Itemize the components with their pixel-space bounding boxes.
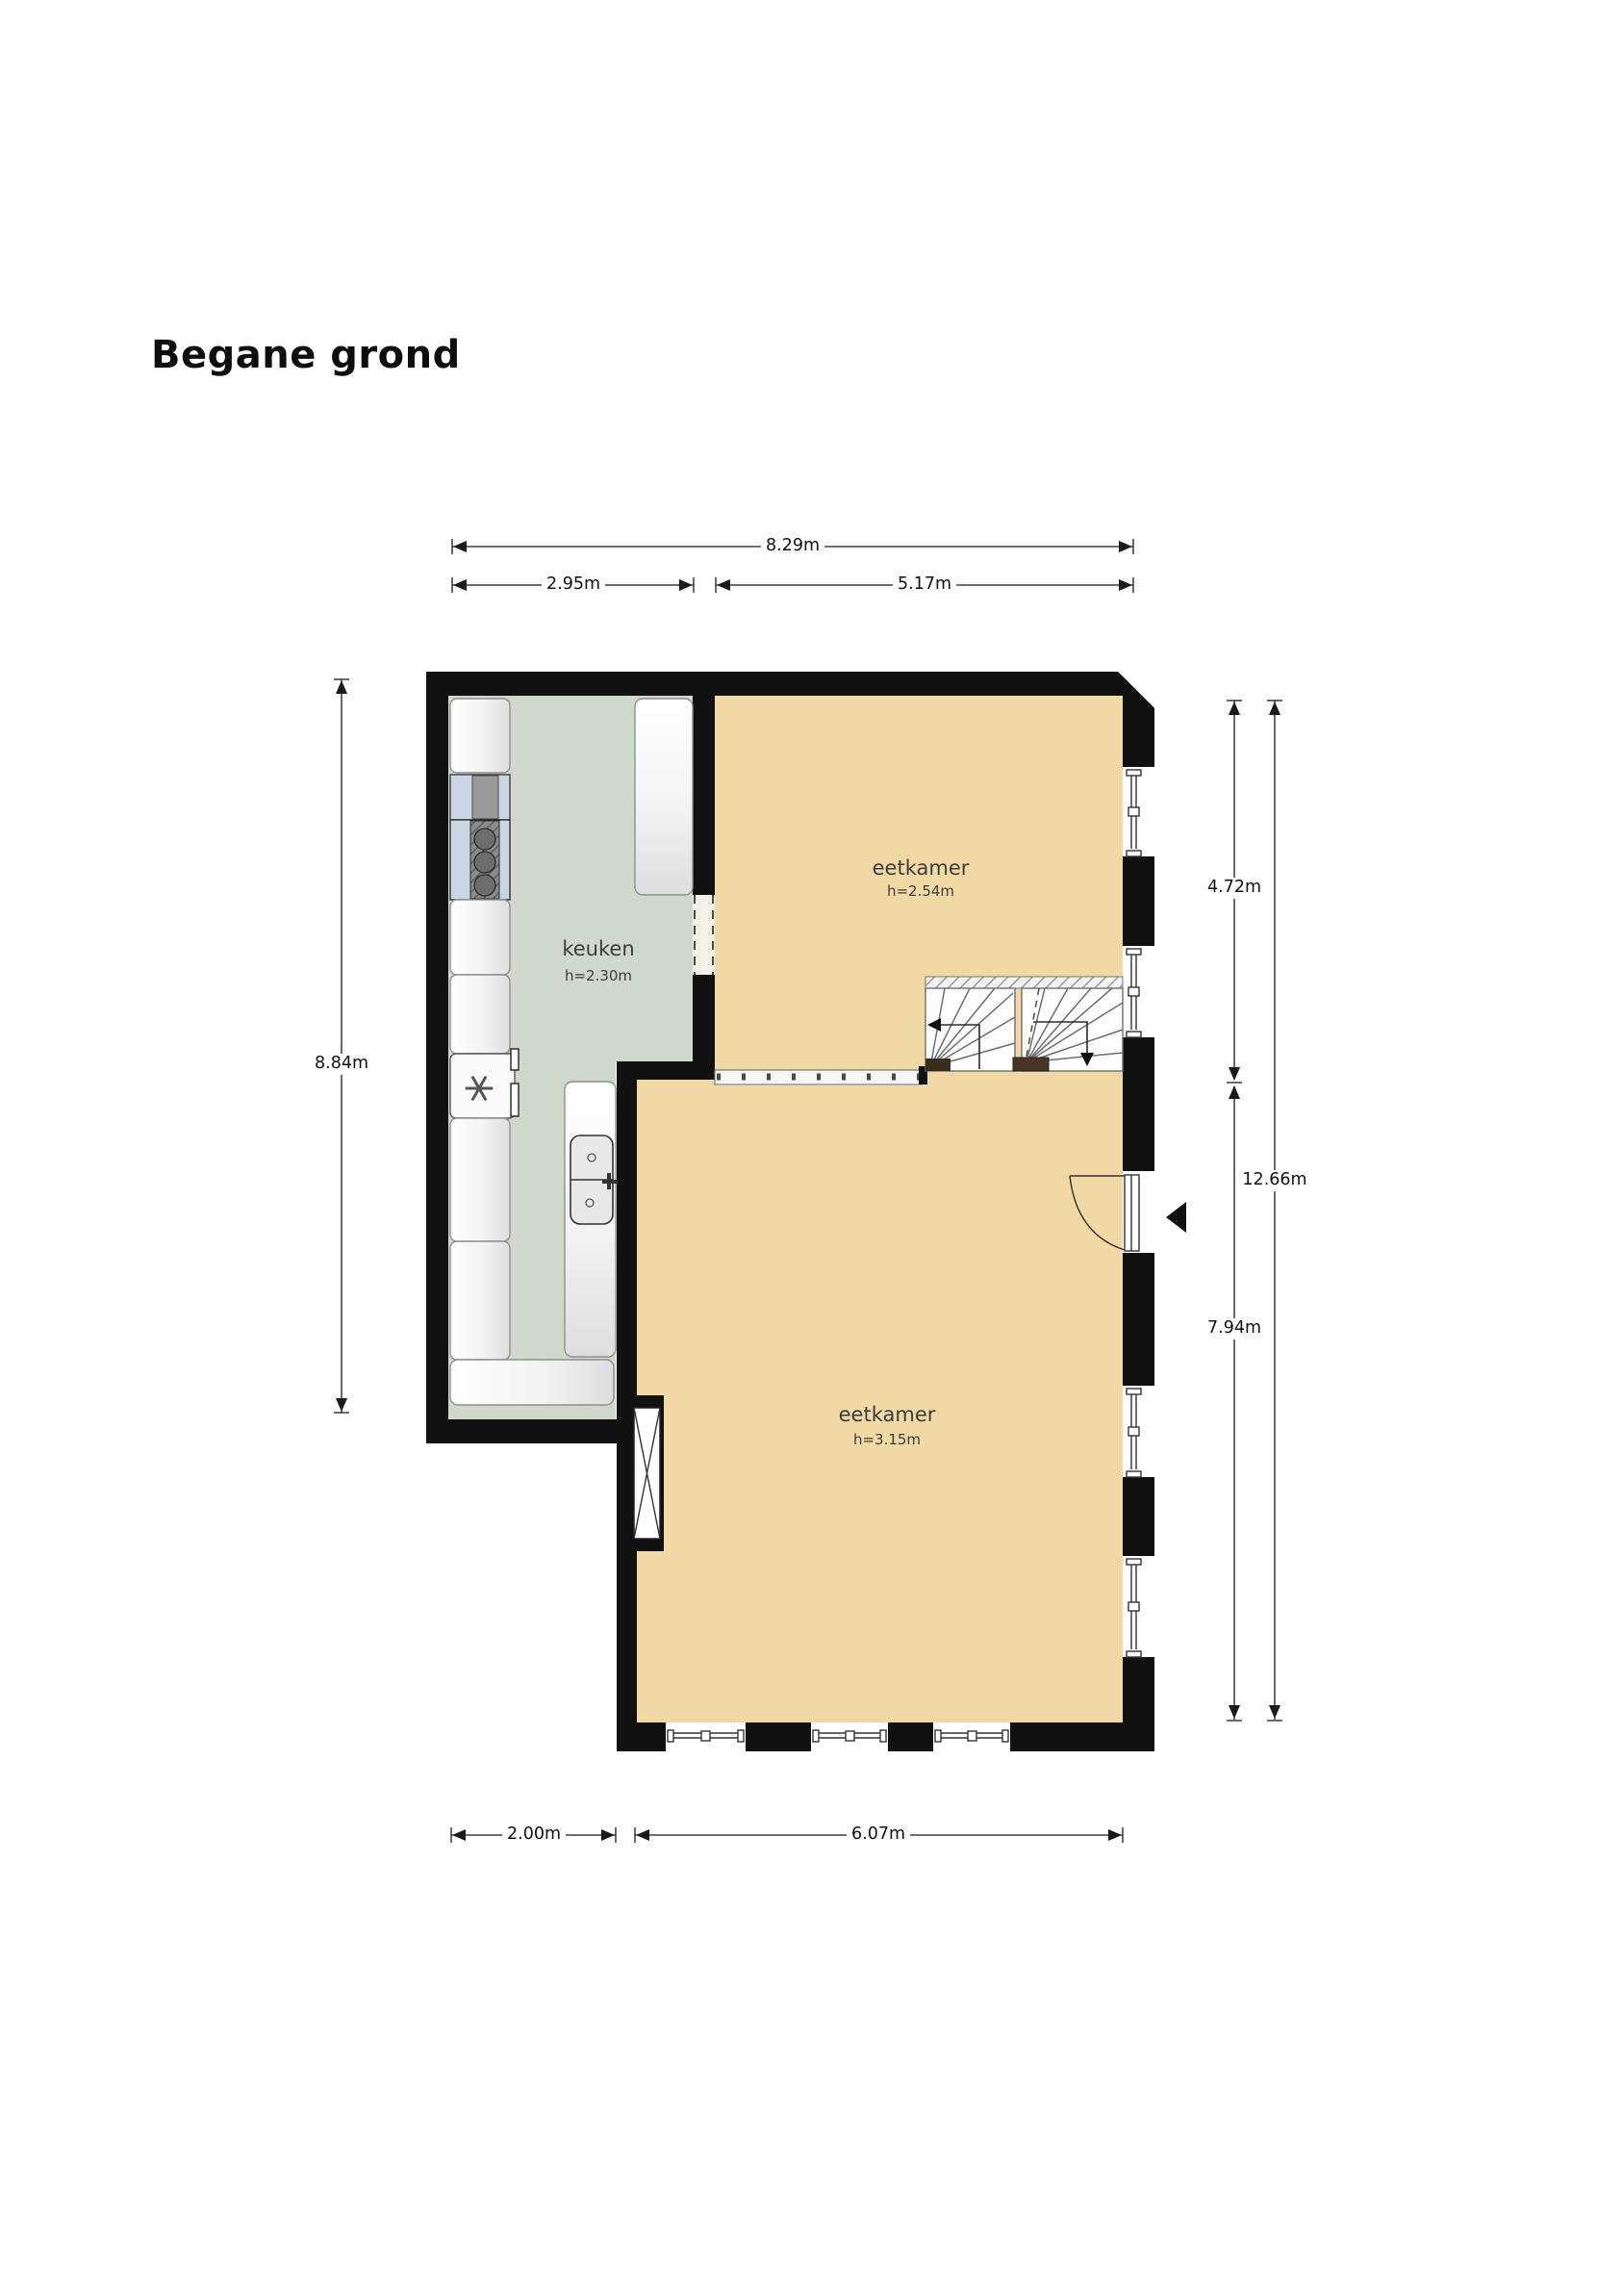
kitchen-counter	[450, 975, 510, 1054]
kitchen-counter	[450, 1360, 614, 1405]
room-label-keuken: keuken	[562, 937, 634, 960]
bottom-wall-openings	[666, 1722, 1010, 1751]
dim-width-kitchen: 2.95m	[542, 574, 605, 596]
dim-height-right-lower: 7.94m	[1203, 1318, 1266, 1339]
sink-icon	[565, 1082, 618, 1357]
window-icon	[811, 1722, 888, 1751]
kitchen-counter	[450, 900, 510, 975]
dim-bottom-kitchen: 2.00m	[502, 1824, 566, 1846]
passage-dashed-opening	[693, 895, 715, 975]
stair-landing-hatch	[925, 977, 1123, 988]
room-height-keuken: h=2.30m	[565, 967, 632, 984]
floors	[448, 696, 1123, 1722]
shaft	[617, 1395, 664, 1551]
window-icon	[1123, 1386, 1154, 1477]
dim-bottom-dining: 6.07m	[847, 1824, 910, 1846]
wall-kitchen-bottom	[426, 1419, 637, 1443]
stove-icon	[450, 820, 510, 900]
window-icon	[1123, 946, 1154, 1037]
window-icon	[666, 1722, 746, 1751]
floorplan-drawing	[0, 0, 1622, 2296]
dim-width-dining: 5.17m	[893, 574, 956, 596]
staircase	[925, 977, 1123, 1071]
kitchen-counter	[450, 699, 510, 773]
room-label-eetkamer-1: eetkamer	[873, 856, 970, 880]
wall-left	[426, 672, 448, 1443]
window-icon	[1123, 1556, 1154, 1657]
dim-height-right-upper: 4.72m	[1203, 878, 1266, 899]
wall-top	[426, 672, 1154, 696]
room-height-eetkamer-1: h=2.54m	[887, 882, 954, 900]
wall-kitchen-dining-lower	[693, 975, 715, 1061]
cooker-hood	[450, 775, 510, 820]
dining-lower-floor	[637, 1071, 1123, 1722]
window-icon	[933, 1722, 1010, 1751]
wall-kitchen-dining-upper	[693, 696, 715, 895]
freezer-icon	[450, 1049, 519, 1118]
kitchen-counter	[635, 699, 693, 895]
dim-width-total: 8.29m	[761, 536, 824, 557]
kitchen-counter	[450, 1241, 510, 1360]
kitchen-counter	[450, 1118, 510, 1241]
floorplan-page: Begane grond	[0, 0, 1622, 2296]
window-icon	[1123, 767, 1154, 856]
stair-first-step	[1013, 1058, 1049, 1071]
room-height-eetkamer-2: h=3.15m	[853, 1431, 921, 1448]
stair-first-step	[925, 1059, 950, 1071]
room-label-eetkamer-2: eetkamer	[839, 1403, 936, 1426]
dim-height-left: 8.84m	[310, 1054, 373, 1075]
wall-mid-horizontal	[617, 1061, 715, 1080]
dim-height-right-total: 12.66m	[1237, 1170, 1311, 1191]
entrance-arrow-icon	[1166, 1202, 1186, 1233]
